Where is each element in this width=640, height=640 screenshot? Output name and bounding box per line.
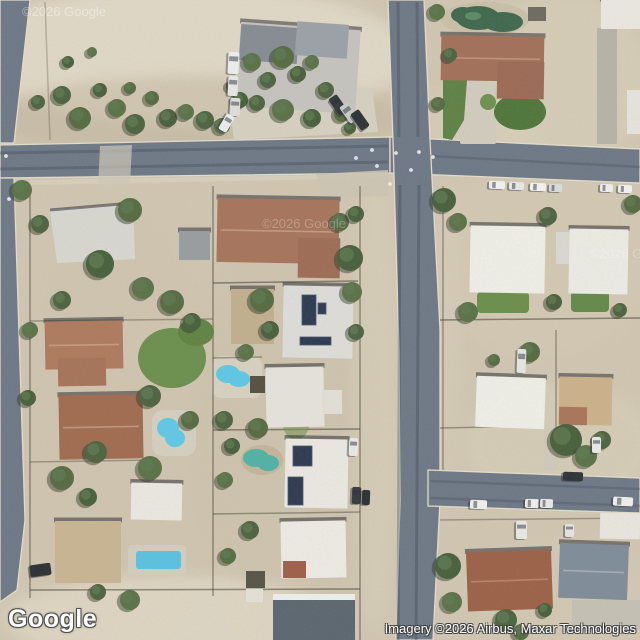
satellite-imagery: ©2026 Google©2026 Google©2026 Google [0,0,640,640]
map-viewport[interactable]: ©2026 Google©2026 Google©2026 Google Goo… [0,0,640,640]
grain-overlay [0,0,640,640]
google-logo-watermark[interactable]: Google [8,605,97,634]
imagery-attribution: Imagery ©2026 Airbus, Maxar Technologies [385,621,636,636]
texture-layer [0,0,640,640]
copyright-watermark: ©2026 Google [262,216,346,231]
copyright-watermark: ©2026 Google [22,4,106,19]
copyright-watermark: ©2026 Google [590,246,640,261]
